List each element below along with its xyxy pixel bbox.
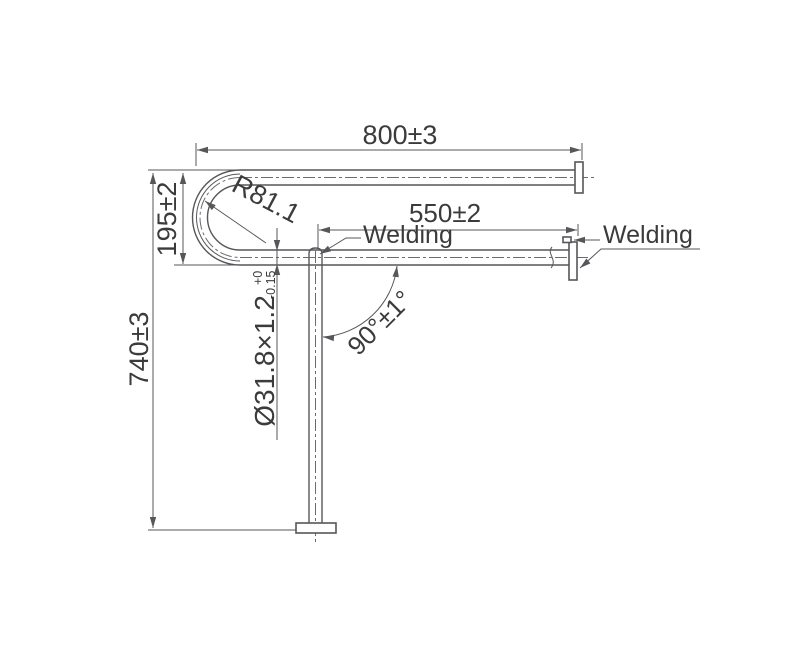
tube-tolerance-upper: +0: [251, 271, 265, 285]
dimension-195: 195±2: [148, 170, 242, 265]
dimension-diameter: Ø31.8×1.2 +0 -0.15: [249, 228, 280, 440]
technical-drawing-canvas: 800±3 550±2 195±2 740±3 Ø31.8×1.2 +0 -0.…: [0, 0, 800, 657]
welding-note-mid: Welding: [318, 221, 452, 257]
flange-weld-tab: [563, 237, 571, 243]
dim-800-label: 800±3: [363, 120, 438, 150]
dim-195-label: 195±2: [152, 182, 182, 257]
dim-740-label: 740±3: [124, 312, 154, 387]
welding-note-right: Welding: [574, 221, 700, 270]
floor-plate: [296, 523, 336, 533]
wall-flange-top: [575, 162, 583, 193]
angle-label: 90°±1°: [341, 284, 418, 361]
welding-right-label: Welding: [603, 221, 693, 249]
wall-flange-bottom: [569, 242, 577, 280]
tube-spec-label: Ø31.8×1.2: [249, 295, 280, 427]
dimension-angle: 90°±1°: [323, 266, 418, 361]
dimension-800: 800±3: [196, 120, 582, 166]
grab-bar-drawing: 800±3 550±2 195±2 740±3 Ø31.8×1.2 +0 -0.…: [0, 0, 800, 657]
tube-tolerance-lower: -0.15: [264, 270, 278, 299]
welding-mid-label: Welding: [363, 221, 453, 249]
